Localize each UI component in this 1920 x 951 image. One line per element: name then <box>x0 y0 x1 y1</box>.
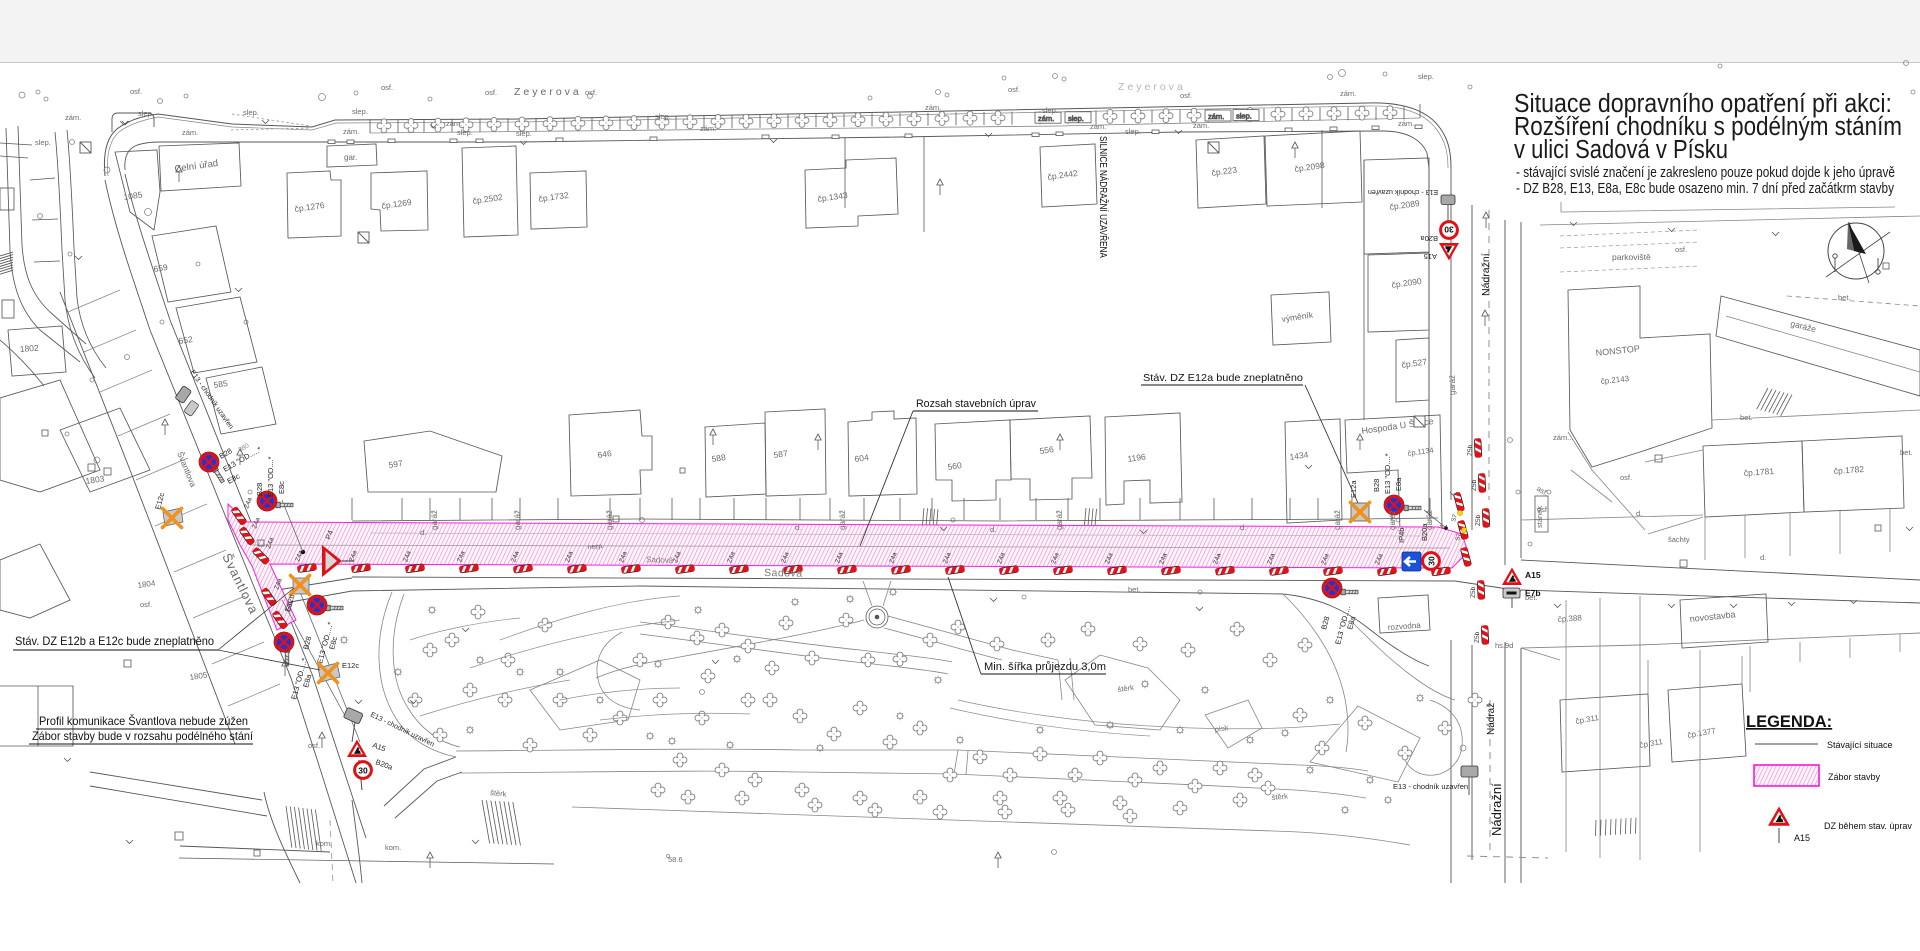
svg-text:E13 - chodník uzavřen: E13 - chodník uzavřen <box>1368 188 1438 195</box>
svg-text:šachty: šachty <box>1668 535 1690 544</box>
svg-text:E13 "OD....*: E13 "OD....* <box>266 456 275 497</box>
svg-text:čp.388: čp.388 <box>1558 613 1583 624</box>
svg-text:Nádražní: Nádražní <box>1489 783 1504 836</box>
svg-text:gar.: gar. <box>344 153 357 162</box>
svg-text:B20a: B20a <box>1420 234 1438 243</box>
svg-text:garáž: garáž <box>513 510 522 530</box>
svg-text:osf.: osf. <box>485 88 497 97</box>
svg-text:A15: A15 <box>1424 252 1437 261</box>
svg-text:kom.: kom. <box>385 843 401 852</box>
svg-text:E12c: E12c <box>342 661 359 670</box>
svg-text:646: 646 <box>597 448 613 460</box>
svg-text:osf.: osf. <box>308 741 320 750</box>
svg-text:bet.: bet. <box>1900 448 1913 457</box>
svg-text:Sadová: Sadová <box>646 555 674 565</box>
svg-text:LEGENDA:: LEGENDA: <box>1746 713 1832 731</box>
svg-text:slep.: slep. <box>1068 114 1084 123</box>
svg-text:Z5b: Z5b <box>1470 586 1477 598</box>
svg-text:604: 604 <box>854 452 870 464</box>
svg-text:B28: B28 <box>1372 479 1381 492</box>
svg-text:Profil komunikace Švantlova ne: Profil komunikace Švantlova nebude zúžen <box>39 713 248 728</box>
svg-text:slep.: slep. <box>457 128 473 137</box>
svg-text:zám...: zám... <box>1553 433 1573 442</box>
svg-text:- stávající svislé značení je: - stávající svislé značení je zakresleno… <box>1516 165 1895 181</box>
svg-text:osf.: osf. <box>130 87 142 96</box>
svg-text:osf.: osf. <box>1180 91 1192 100</box>
svg-text:čp.1781: čp.1781 <box>1743 466 1774 478</box>
svg-text:garáž: garáž <box>1388 510 1397 530</box>
svg-text:slep.: slep. <box>352 107 368 116</box>
svg-text:osf.: osf. <box>1537 505 1549 514</box>
svg-text:čp.1782: čp.1782 <box>1833 464 1864 476</box>
svg-text:IP4b: IP4b <box>1397 528 1406 543</box>
svg-text:zám.: zám. <box>700 124 716 133</box>
svg-text:Z5b: Z5b <box>1475 514 1482 526</box>
svg-text:zám.: zám. <box>925 103 941 112</box>
svg-text:garáž: garáž <box>838 510 847 530</box>
svg-text:d.: d. <box>1760 553 1766 562</box>
svg-text:osf.: osf. <box>1008 85 1020 94</box>
svg-text:E13 "OD....*: E13 "OD....* <box>1383 453 1392 494</box>
svg-text:659: 659 <box>153 262 169 274</box>
svg-text:E13 - chodník uzavřen: E13 - chodník uzavřen <box>1393 782 1468 791</box>
svg-text:garáž: garáž <box>1055 510 1064 530</box>
svg-text:652: 652 <box>178 334 194 346</box>
svg-text:zám.: zám. <box>182 128 198 137</box>
svg-text:slep.: slep. <box>138 109 154 118</box>
svg-text:slep.: slep. <box>1125 127 1141 136</box>
svg-text:d.: d. <box>1636 509 1642 518</box>
svg-text:585: 585 <box>213 378 229 390</box>
svg-text:Nádraž: Nádraž <box>1486 703 1497 735</box>
svg-text:osf.: osf. <box>1620 473 1632 482</box>
svg-text:v ulici Sadová v Písku: v ulici Sadová v Písku <box>1514 136 1728 164</box>
svg-text:štěrk: štěrk <box>490 788 507 799</box>
svg-text:zám.: zám. <box>343 127 359 136</box>
svg-text:slep.: slep. <box>655 112 671 121</box>
svg-text:bet.: bet. <box>1740 413 1753 422</box>
svg-text:587: 587 <box>773 448 789 460</box>
svg-text:597: 597 <box>388 458 404 470</box>
svg-text:Stáv. DZ E12a bude zneplatněno: Stáv. DZ E12a bude zneplatněno <box>1143 372 1303 384</box>
svg-text:SILNICE NÁDRAŽNÍ UZAVŘENA: SILNICE NÁDRAŽNÍ UZAVŘENA <box>1097 136 1110 258</box>
svg-text:Nádražní: Nádražní <box>1480 253 1492 296</box>
svg-text:garáž: garáž <box>1333 510 1342 530</box>
svg-text:Z5b: Z5b <box>1474 631 1481 643</box>
svg-text:zám.: zám. <box>1038 114 1054 123</box>
svg-text:d.: d. <box>420 528 426 537</box>
svg-text:d.: d. <box>1240 523 1246 532</box>
svg-text:A15: A15 <box>1794 833 1810 843</box>
svg-text:kom.: kom. <box>316 839 332 848</box>
svg-text:d.: d. <box>990 525 996 534</box>
svg-text:E12a: E12a <box>1349 480 1358 498</box>
svg-text:1802: 1802 <box>19 343 39 354</box>
svg-text:parkoviště: parkoviště <box>1612 252 1651 262</box>
svg-text:bet.: bet. <box>1525 593 1538 602</box>
svg-text:B28: B28 <box>255 483 264 496</box>
svg-text:Zeyerova: Zeyerova <box>1118 81 1186 93</box>
svg-text:58.6: 58.6 <box>668 855 683 864</box>
svg-text:hs.9d: hs.9d <box>1495 641 1513 650</box>
svg-text:E8c: E8c <box>277 481 286 494</box>
svg-text:slep.: slep. <box>1418 72 1434 81</box>
svg-text:bet.: bet. <box>1128 585 1141 594</box>
svg-text:garáž: garáž <box>1448 375 1457 395</box>
svg-text:zám.: zám. <box>1340 89 1356 98</box>
svg-text:slep.: slep. <box>1236 112 1252 121</box>
svg-text:garáž: garáž <box>430 510 439 530</box>
svg-text:slep.: slep. <box>1042 106 1058 115</box>
svg-text:Zábor stavby bude v rozsahu po: Zábor stavby bude v rozsahu podélného st… <box>32 729 254 743</box>
svg-text:osf.: osf. <box>585 88 597 97</box>
svg-text:garáž: garáž <box>1425 510 1434 530</box>
svg-text:osf.: osf. <box>1675 245 1687 254</box>
svg-text:zám.: zám. <box>446 119 462 128</box>
svg-text:osf.: osf. <box>140 600 152 609</box>
svg-text:Rozsah stavebních úprav: Rozsah stavebních úprav <box>916 398 1036 410</box>
svg-text:A15: A15 <box>1525 570 1541 580</box>
svg-text:560: 560 <box>947 460 963 472</box>
svg-text:Stáv. DZ E12b a E12c bude znep: Stáv. DZ E12b a E12c bude zneplatněno <box>15 634 214 648</box>
svg-text:slep.: slep. <box>516 129 532 138</box>
svg-text:d.: d. <box>795 523 801 532</box>
svg-text:zám.: zám. <box>1193 121 1209 130</box>
svg-text:osf.: osf. <box>381 83 393 92</box>
svg-text:- DZ B28, E13, E8a, E8c bude o: - DZ B28, E13, E8a, E8c bude osazeno min… <box>1516 181 1895 197</box>
svg-text:zám.: zám. <box>1208 112 1224 121</box>
svg-text:štěrk: štěrk <box>1271 791 1288 802</box>
svg-text:zám.: zám. <box>65 113 81 122</box>
svg-text:DZ během stav. úprav: DZ během stav. úprav <box>1824 821 1912 831</box>
svg-text:slep.: slep. <box>243 108 259 117</box>
svg-text:E8a: E8a <box>1394 477 1403 491</box>
svg-text:Min. šířka průjezdu 3,0m: Min. šířka průjezdu 3,0m <box>984 661 1106 673</box>
svg-text:zám.: zám. <box>1398 119 1414 128</box>
svg-text:Zeyerova: Zeyerova <box>514 86 582 98</box>
svg-text:Z5b: Z5b <box>1471 479 1478 491</box>
svg-text:Stávající situace: Stávající situace <box>1827 740 1893 750</box>
svg-text:556: 556 <box>1039 444 1055 456</box>
svg-text:bet.: bet. <box>1838 293 1851 302</box>
svg-text:Z5b: Z5b <box>1467 444 1474 456</box>
svg-text:zám.: zám. <box>1090 122 1106 131</box>
svg-text:Sadová: Sadová <box>764 567 803 580</box>
svg-text:Zábor stavby: Zábor stavby <box>1828 772 1881 782</box>
svg-text:588: 588 <box>711 452 727 464</box>
svg-text:slep.: slep. <box>35 138 51 147</box>
svg-text:nezp.: nezp. <box>588 543 605 551</box>
